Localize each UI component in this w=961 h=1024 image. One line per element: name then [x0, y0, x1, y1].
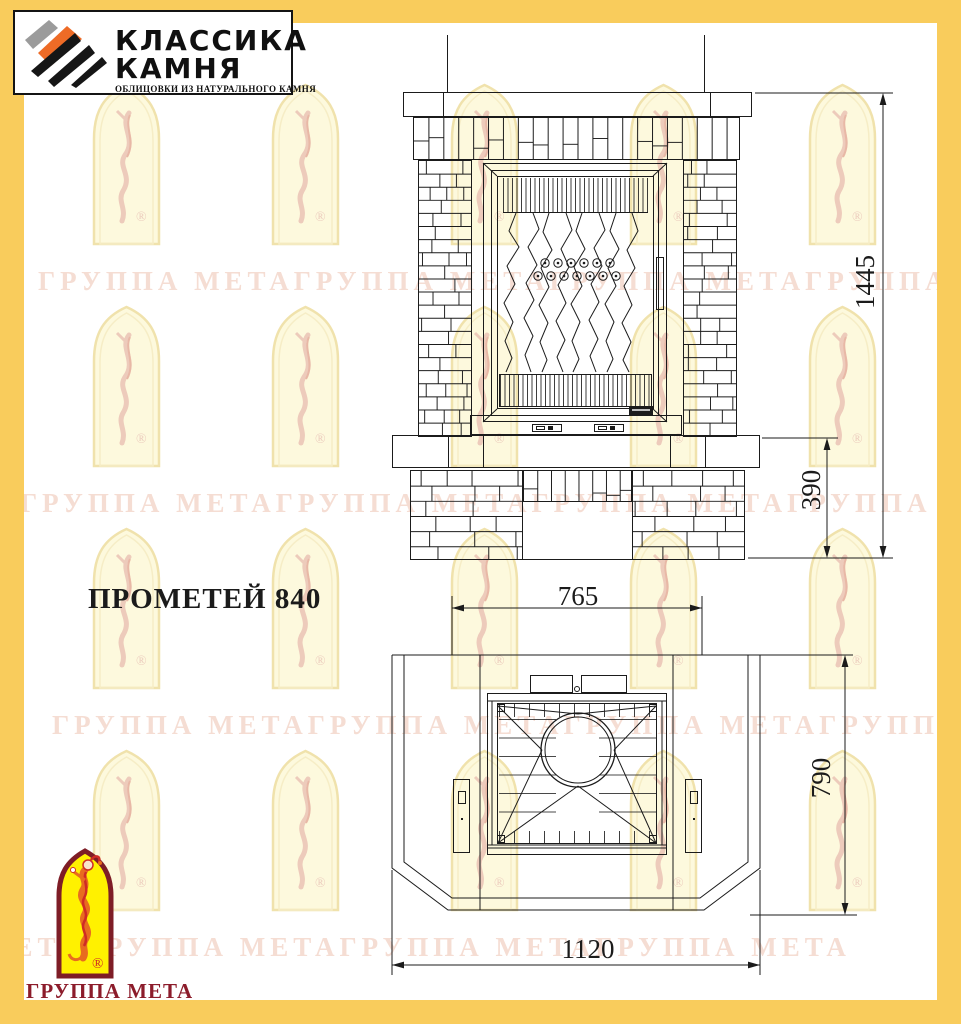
insert-corner-pad: [649, 704, 657, 712]
logo-subtitle: ОБЛИЦОВКИ ИЗ НАТУРАЛЬНОГО КАМНЯ: [115, 84, 316, 94]
dim-label-top-width: 765: [540, 580, 616, 612]
side-bracket-right: [685, 779, 702, 853]
insert-top-tab: [581, 675, 627, 693]
insert-corner-pad: [497, 704, 505, 712]
frame-border-left: [0, 0, 24, 1024]
registered-mark-icon: ®: [92, 956, 103, 972]
bracket-dot: [461, 818, 463, 820]
insert-top-tab: [530, 675, 573, 693]
insert-corner-pad: [649, 835, 657, 843]
insert-corner-pad: [497, 835, 505, 843]
insert-rib-strip-bottom: [499, 831, 655, 844]
dim-label-total-height: 1445: [849, 237, 881, 327]
bracket-mark: [458, 791, 466, 804]
gruppa-meta-arch-logo: ®: [55, 848, 115, 979]
frame-border-right: [937, 0, 961, 1024]
model-title: ПРОМЕТЕЙ 840: [88, 583, 321, 616]
dim-label-pedestal-height: 390: [795, 445, 827, 535]
logo-word-2: КАМНЯ: [115, 52, 242, 85]
insert-rib-strip-right: [599, 719, 656, 829]
dim-label-depth: 790: [805, 733, 837, 823]
brush-strokes-icon: [21, 18, 113, 88]
bracket-dot: [693, 818, 695, 820]
gruppa-meta-label: ГРУППА МЕТА: [26, 979, 193, 1004]
insert-rib-strip-left: [499, 719, 556, 829]
insert-rib-strip-top: [499, 704, 655, 717]
side-bracket-left: [453, 779, 470, 853]
klassika-kamnya-logo: КЛАССИКА КАМНЯ ОБЛИЦОВКИ ИЗ НАТУРАЛЬНОГО…: [13, 10, 293, 95]
bracket-mark: [690, 791, 698, 804]
dim-label-base-width: 1120: [534, 933, 642, 965]
page: ® ® ® ® ®: [0, 0, 961, 1024]
